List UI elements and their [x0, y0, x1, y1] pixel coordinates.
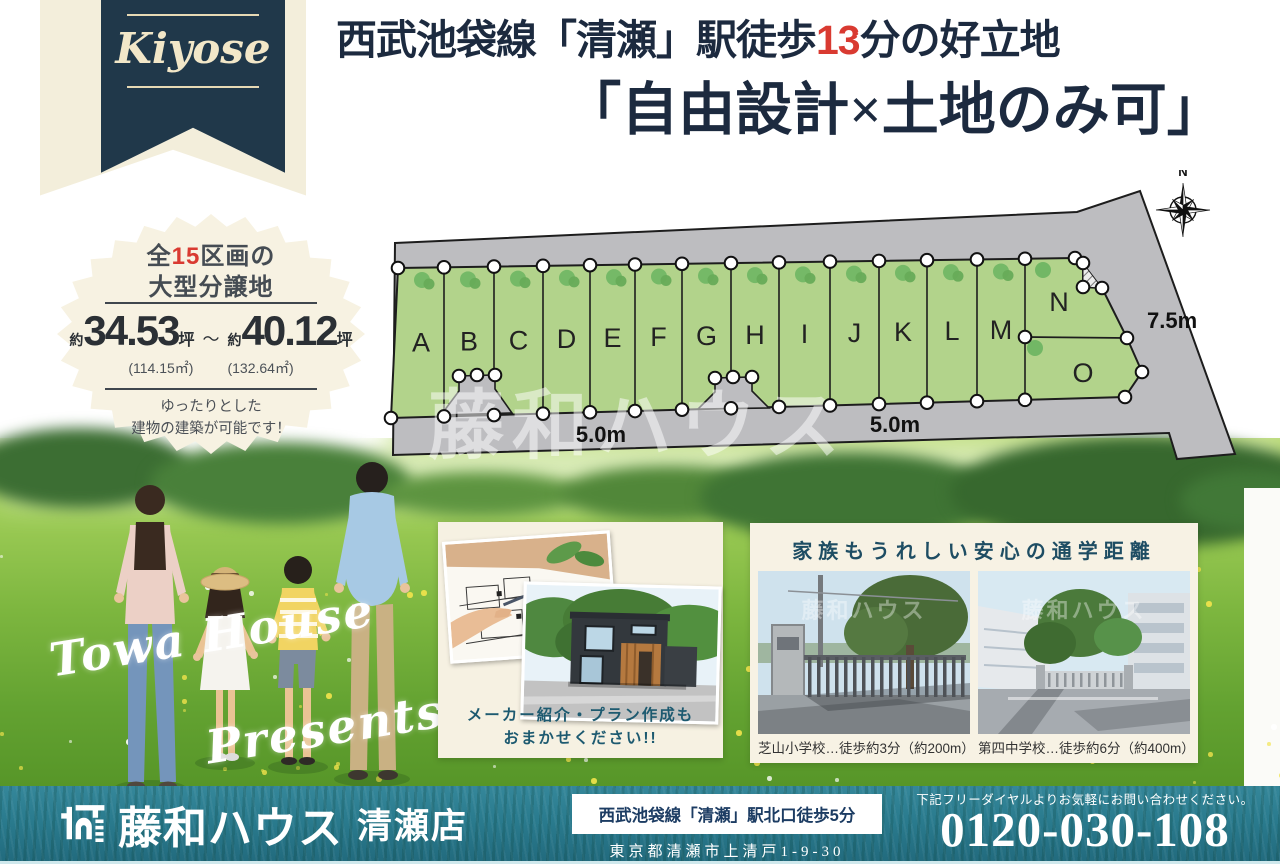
vertex-dot [725, 402, 738, 415]
station-access-box: 西武池袋線「清瀬」駅北口徒歩5分 [572, 794, 882, 834]
area-min-sqm: (114.15㎡) [128, 358, 193, 378]
badge-area-sqm: (114.15㎡) (132.64㎡) [52, 358, 370, 378]
junior-high-caption: 第四中学校…徒歩約6分（約400m） [978, 737, 1190, 757]
badge-count-after: 区画の [200, 243, 275, 270]
vertex-dot [1119, 391, 1132, 404]
footer-bar: 藤和ハウス 清瀬店 西武池袋線「清瀬」駅北口徒歩5分 東京都清瀬市上清戸1-9-… [0, 786, 1280, 864]
flower-dot [1206, 601, 1212, 607]
lot-map: 藤和ハウス5.0m5.0m7.5mABCDEFGHIJKLMNON [383, 170, 1243, 520]
elementary-school-caption: 芝山小学校…徒歩約3分（約200m） [758, 737, 970, 757]
tree [1035, 262, 1051, 278]
vertex-dot [1136, 366, 1149, 379]
unit-min: 坪 [178, 326, 194, 350]
vertex-dot [392, 262, 405, 275]
approx-min: 約 [69, 330, 83, 350]
vertex-dot [629, 258, 642, 271]
plan-service-card: メーカー紹介・プラン作成も おまかせください!! [438, 522, 723, 758]
area-max: 40.12 [242, 310, 337, 352]
lot-label: I [801, 319, 809, 349]
vertex-dot [1019, 394, 1032, 407]
lot-label: E [603, 323, 621, 353]
badge-count: 15 [172, 243, 201, 270]
road-width-label: 5.0m [576, 422, 626, 447]
vertex-dot [537, 407, 550, 420]
area-min: 34.53 [83, 310, 178, 352]
lot-label: O [1072, 358, 1093, 388]
right-margin [1244, 488, 1280, 788]
flower-dot [591, 778, 597, 784]
flower-dot [1267, 742, 1271, 746]
vertex-dot [873, 398, 886, 411]
vertex-dot [824, 399, 837, 412]
badge-note-line1: ゆったりとした [52, 396, 370, 418]
ribbon-rule-bottom [127, 86, 259, 88]
badge-divider-bottom [105, 388, 317, 390]
lot-label: D [557, 324, 577, 354]
tilde: ～ [203, 325, 220, 350]
road-width-label: 7.5m [1147, 308, 1197, 333]
vertex-dot [438, 261, 451, 274]
flower-dot [767, 776, 772, 781]
vertex-dot [709, 372, 722, 385]
vertex-dot [727, 371, 740, 384]
vertex-dot [1121, 332, 1134, 345]
vertex-dot [921, 254, 934, 267]
flower-dot [1271, 724, 1277, 730]
vertex-dot [773, 256, 786, 269]
badge-count-before: 全 [147, 243, 172, 270]
junior-high-photo [978, 571, 1190, 734]
vertex-dot [676, 258, 689, 271]
lot-label: B [460, 326, 478, 356]
flower-dot [19, 766, 23, 770]
flower-dot [493, 765, 496, 768]
headline1-after: 分の好立地 [860, 17, 1060, 63]
badge-note-line2: 建物の建築が可能です！ [52, 418, 370, 440]
lot-label: G [696, 321, 717, 351]
lot-label: H [745, 320, 765, 350]
ribbon-label: Kiyose [101, 24, 285, 73]
badge-count-line: 全15区画の [52, 236, 370, 271]
vertex-dot [1019, 331, 1032, 344]
lot-divider-no [1025, 337, 1127, 338]
lot-label: M [990, 315, 1013, 345]
phone-number: 0120-030-108 [893, 803, 1277, 857]
flower-dot [1193, 781, 1196, 784]
lot-label: A [412, 327, 430, 357]
vertex-dot [471, 369, 484, 382]
lot-label: F [650, 322, 667, 352]
vertex-dot [385, 412, 398, 425]
unit-max: 坪 [337, 326, 353, 350]
vertex-dot [676, 403, 689, 416]
area-max-sqm: (132.64㎡) [227, 358, 293, 378]
vertex-dot [1077, 281, 1090, 294]
flower-dot [736, 730, 742, 736]
headline-free-design: 「自由設計×土地のみ可」 [546, 64, 1242, 146]
vertex-dot [746, 371, 759, 384]
badge-divider-top [105, 302, 317, 304]
vertex-dot [438, 410, 451, 423]
vertex-dot [1077, 257, 1090, 270]
vertex-dot [453, 370, 466, 383]
vertex-dot [488, 260, 501, 273]
plan-card-caption: メーカー紹介・プラン作成も おまかせください!! [438, 704, 723, 751]
flower-dot [835, 778, 839, 782]
school-card-title: 家族もうれしい安心の通学距離 [750, 535, 1198, 564]
compass-rose [1156, 183, 1210, 237]
brand-row: 藤和ハウス 清瀬店 [54, 786, 468, 861]
vertex-dot [489, 369, 502, 382]
badge-type-line: 大型分譲地 [52, 267, 370, 302]
vertex-dot [1096, 282, 1109, 295]
towa-house-logo-icon [54, 797, 108, 851]
headline1-before: 西武池袋線「清瀬」駅徒歩 [336, 17, 816, 63]
vertex-dot [824, 255, 837, 268]
headline-station-access: 西武池袋線「清瀬」駅徒歩13分の好立地 [336, 6, 1004, 66]
flower-dot [0, 732, 4, 736]
vertex-dot [584, 259, 597, 272]
vertex-dot [971, 395, 984, 408]
badge-area-range: 約 34.53 坪 ～ 約 40.12 坪 [52, 310, 370, 352]
lot-label: K [894, 317, 912, 347]
plan-caption-line1: メーカー紹介・プラン作成も [438, 704, 723, 727]
lot-info-badge: 全15区画の 大型分譲地 約 34.53 坪 ～ 約 40.12 坪 (114.… [52, 210, 370, 460]
lot-label: C [509, 325, 529, 355]
address: 東京都清瀬市上清戸1-9-30 [572, 840, 882, 861]
lot-label: N [1049, 287, 1069, 317]
vertex-dot [873, 255, 886, 268]
brand-name: 藤和ハウス [118, 792, 343, 856]
vertex-dot [725, 257, 738, 270]
headline1-minutes: 13 [816, 17, 860, 63]
compass-north-label: N [1178, 170, 1187, 179]
lot-label: L [944, 316, 959, 346]
real-estate-flyer: { "watermark": "藤和ハウス", "ribbon": { "lab… [0, 0, 1280, 864]
flower-dot [1208, 752, 1213, 757]
flower-dot [0, 555, 3, 558]
vertex-dot [488, 409, 501, 422]
map-watermark: 藤和ハウス [428, 384, 848, 469]
ribbon-rule-top [127, 14, 259, 16]
vertex-dot [537, 260, 550, 273]
vertex-dot [971, 253, 984, 266]
school-distance-card: 家族もうれしい安心の通学距離 [750, 523, 1198, 763]
lot-label: J [848, 318, 862, 348]
vertex-dot [773, 401, 786, 414]
flower-dot [584, 758, 588, 762]
approx-max: 約 [228, 330, 242, 350]
vertex-dot [1019, 252, 1032, 265]
vertex-dot [584, 406, 597, 419]
vertex-dot [921, 396, 934, 409]
vertex-dot [629, 405, 642, 418]
elementary-school-photo [758, 571, 970, 734]
badge-note: ゆったりとした 建物の建築が可能です！ [52, 396, 370, 441]
plan-caption-line2: おまかせください!! [438, 727, 723, 750]
road-width-label: 5.0m [870, 412, 920, 437]
branch-name: 清瀬店 [357, 798, 468, 849]
